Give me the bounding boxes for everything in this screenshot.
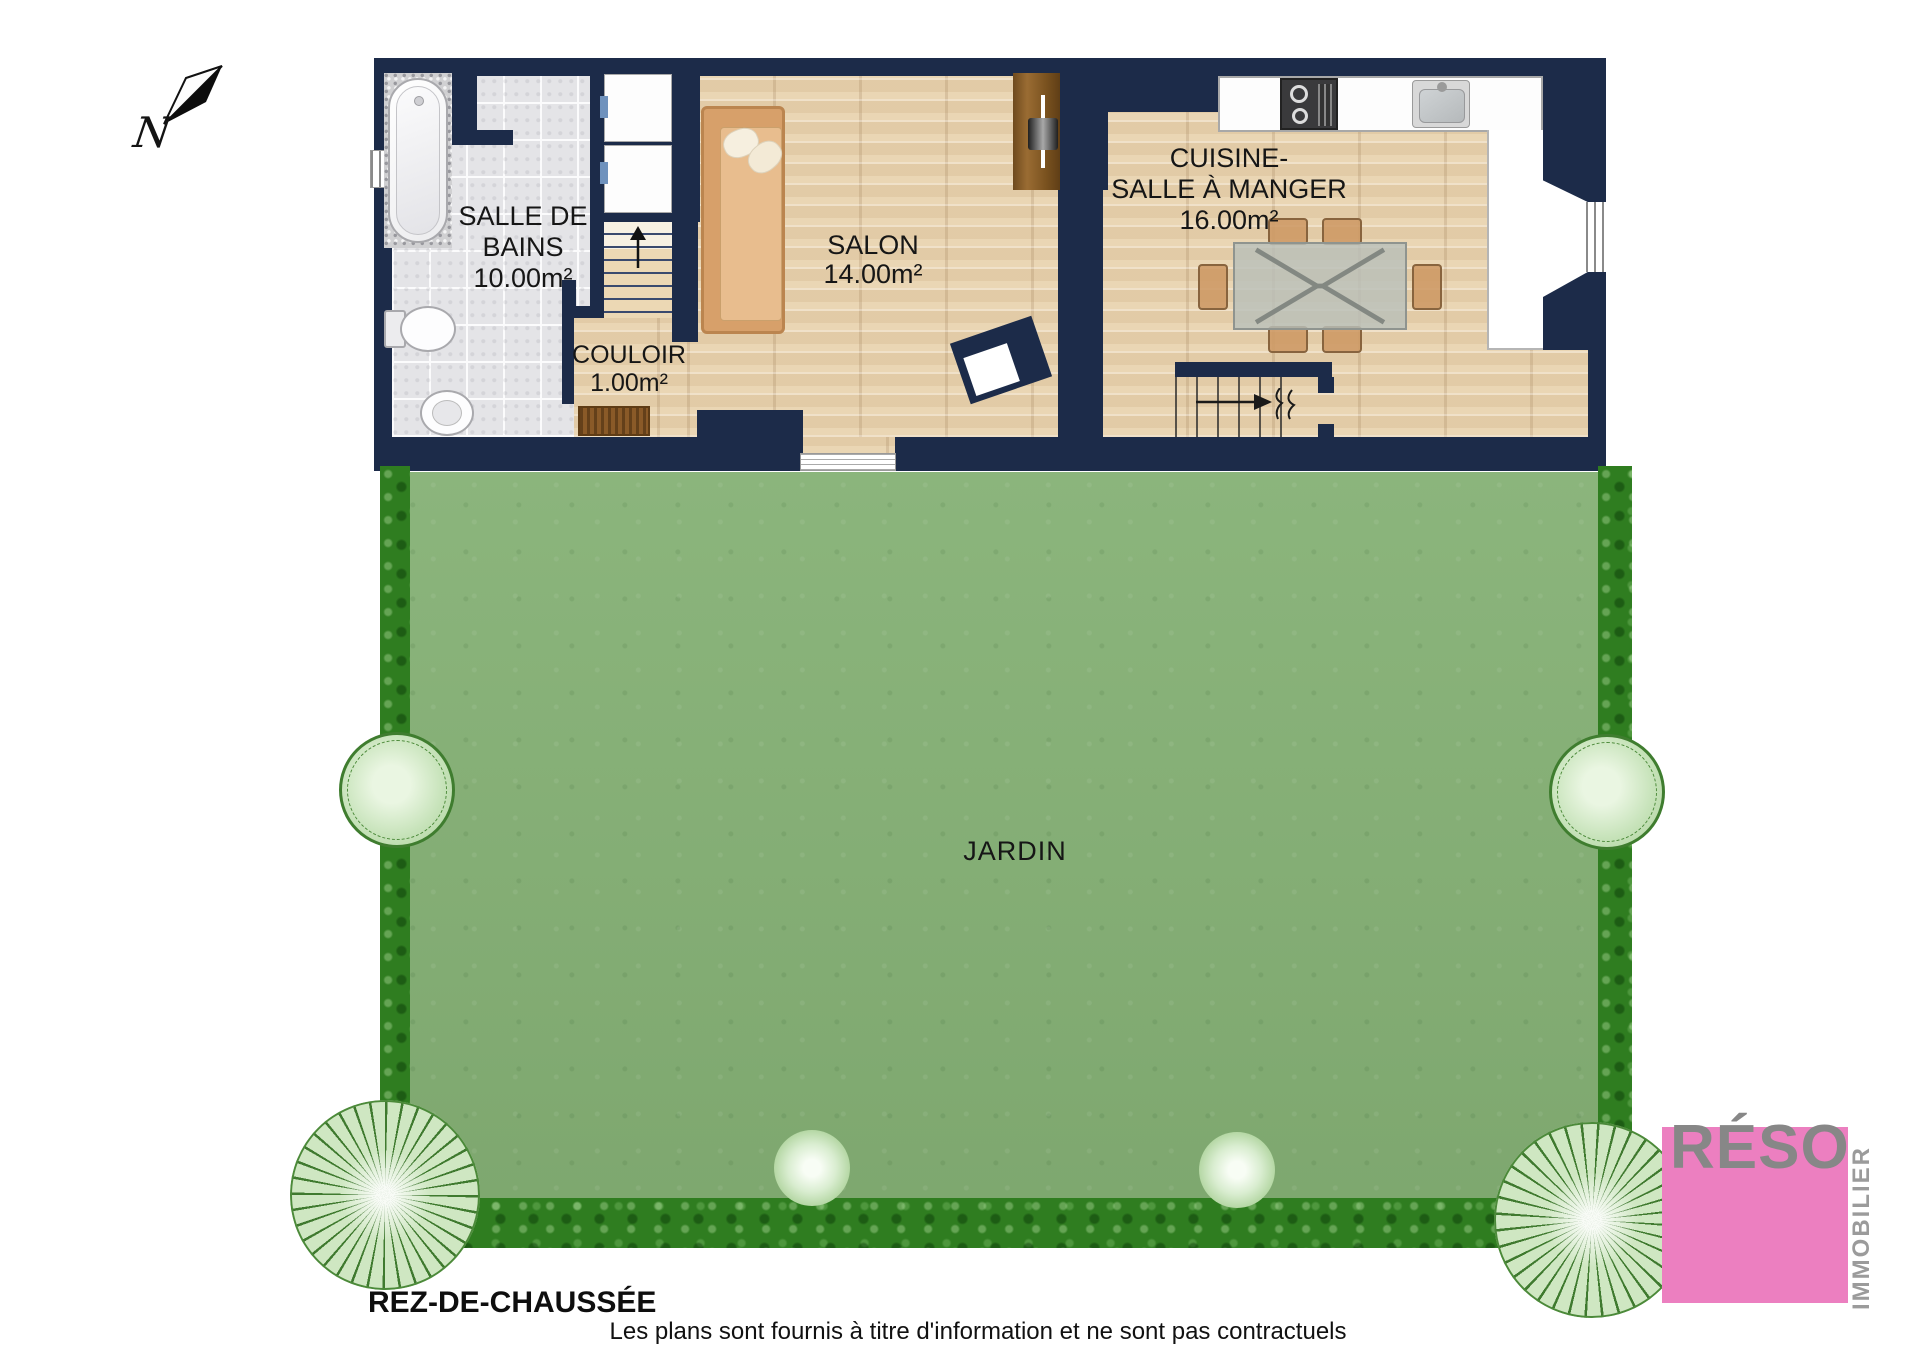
compass-north-label: N	[131, 108, 175, 157]
bathroom-area: 10.00m²	[403, 263, 643, 294]
sofa-icon	[701, 106, 785, 334]
garden-shrub-icon	[774, 1130, 850, 1206]
closet-upper	[604, 74, 672, 142]
wall-bathtub-nook-horizontal	[452, 130, 513, 145]
living-room-name: SALON	[753, 231, 993, 260]
wall-top	[374, 58, 1606, 76]
staircase-down-post	[1318, 377, 1334, 393]
living-room-label: SALON 14.00m²	[753, 231, 993, 289]
garden-shrub-icon	[1199, 1132, 1275, 1208]
wall-kitchen-top-chunk	[1103, 58, 1218, 112]
garden-bush-icon	[1549, 734, 1665, 850]
closet-hinge-icon	[600, 96, 608, 118]
hallway-label: COULOIR 1.00m²	[539, 341, 719, 397]
bathroom-name-line1: SALLE DE	[403, 201, 643, 232]
wall-right-lower	[1588, 350, 1606, 437]
closet-hinge-icon	[600, 162, 608, 184]
stairs-down-arrow-icon	[1192, 388, 1302, 420]
pedestal-sink-icon	[420, 390, 474, 436]
bathroom-label: SALLE DE BAINS 10.00m²	[403, 201, 643, 294]
garden-hedge-bottom	[380, 1198, 1632, 1248]
wall-living-step	[697, 410, 803, 438]
kitchen-label: CUISINE- SALLE À MANGER 16.00m²	[1049, 143, 1409, 236]
living-room-area: 14.00m²	[753, 260, 993, 289]
wall-bathroom-hallway-stub	[576, 306, 604, 318]
garden-door-icon	[800, 453, 896, 471]
kitchen-sink-icon	[1412, 80, 1470, 128]
dining-chair-icon	[1198, 264, 1228, 310]
wall-stairs-right	[672, 222, 698, 342]
dining-table-icon	[1233, 242, 1407, 330]
kitchen-name-line1: CUISINE-	[1049, 143, 1409, 174]
toilet-icon	[384, 306, 458, 354]
garden-tree-icon	[290, 1100, 480, 1290]
hallway-area: 1.00m²	[539, 369, 719, 397]
garden-name: JARDIN	[895, 836, 1135, 867]
kitchen-window-overlay	[1586, 202, 1606, 272]
cooktop-icon	[1280, 78, 1338, 130]
garden-label: JARDIN	[895, 836, 1135, 867]
staircase-down-post	[1318, 424, 1334, 437]
doormat-icon	[578, 406, 650, 436]
floor-title: REZ-DE-CHAUSSÉE	[368, 1286, 656, 1320]
kitchen-area: 16.00m²	[1049, 205, 1409, 236]
agency-logo-tagline: IMMOBILIER	[1848, 1124, 1884, 1310]
hallway-name: COULOIR	[539, 341, 719, 369]
bathroom-name-line2: BAINS	[403, 232, 643, 263]
wall-bottom	[374, 437, 1606, 471]
dining-chair-icon	[1268, 326, 1308, 353]
garden-bush-icon	[339, 732, 455, 848]
disclaimer-text: Les plans sont fournis à titre d'informa…	[558, 1318, 1398, 1346]
kitchen-counter	[1218, 76, 1543, 132]
dining-chair-icon	[1412, 264, 1442, 310]
agency-logo-brand: RÉSO	[1670, 1112, 1850, 1183]
floor-plan-canvas: N	[0, 0, 1920, 1356]
dining-chair-icon	[1322, 326, 1362, 353]
kitchen-name-line2: SALLE À MANGER	[1049, 174, 1409, 205]
staircase-down-wall-bar	[1175, 362, 1332, 377]
